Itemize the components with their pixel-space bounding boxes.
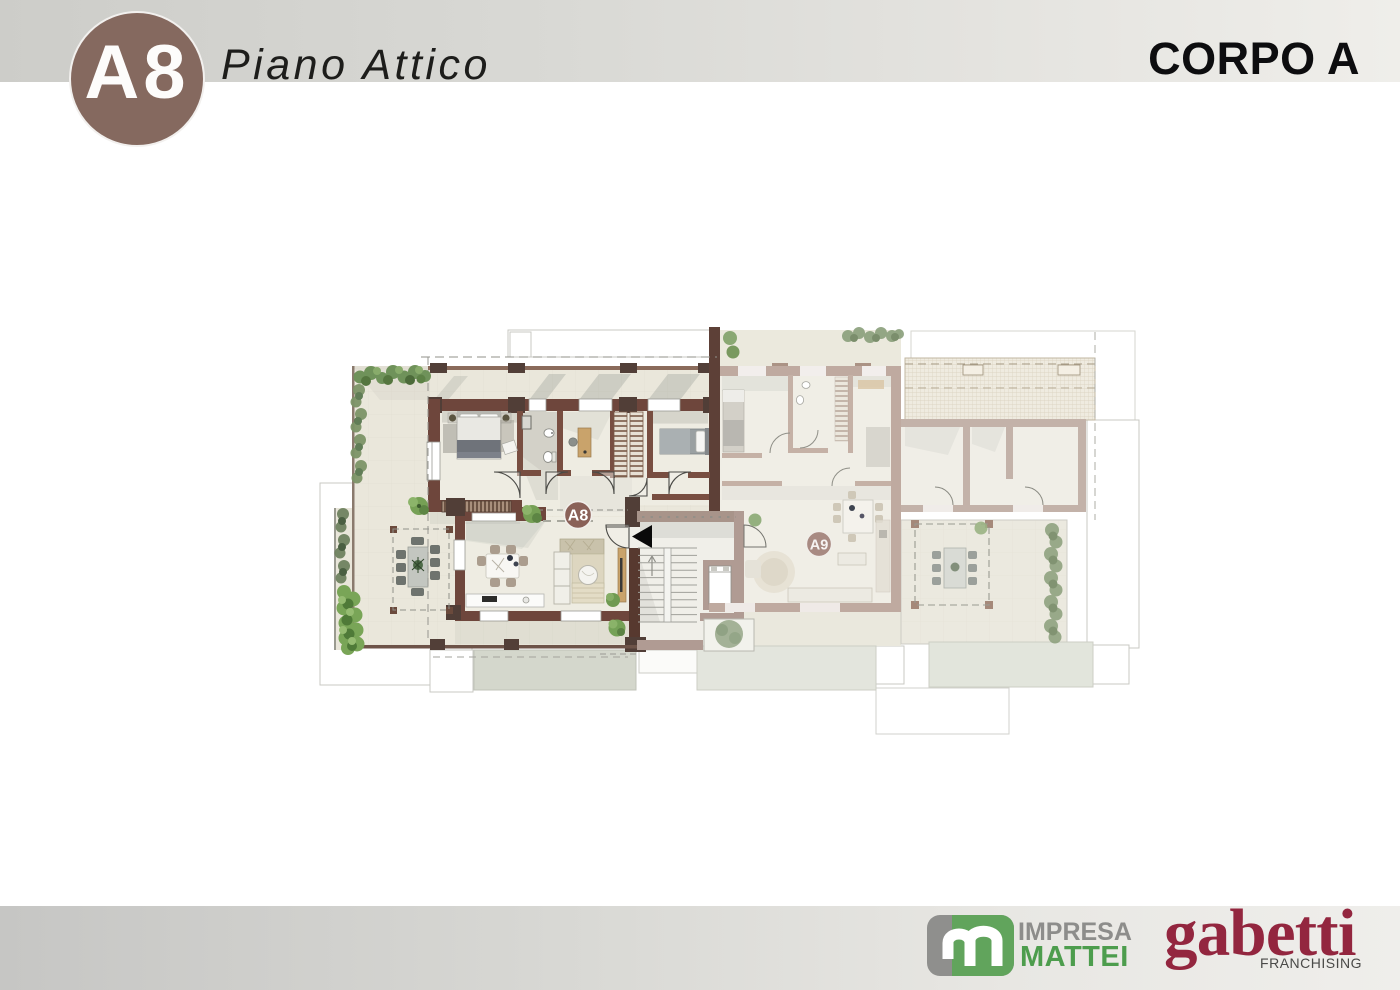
svg-text:A8: A8 <box>568 508 589 525</box>
svg-text:A9: A9 <box>810 538 829 554</box>
